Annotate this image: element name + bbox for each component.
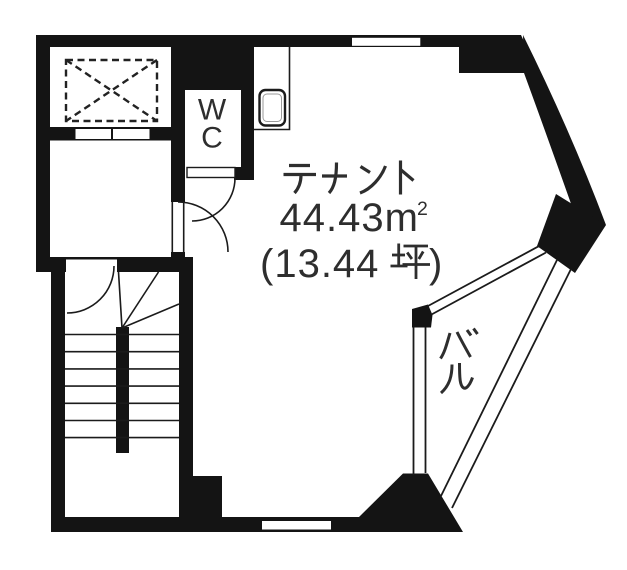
svg-text:44.43m: 44.43m [280,196,419,240]
svg-text:2: 2 [417,198,428,220]
svg-text:(13.44: (13.44 [260,242,379,286]
svg-text:C: C [201,122,223,155]
svg-text:): ) [429,242,442,286]
